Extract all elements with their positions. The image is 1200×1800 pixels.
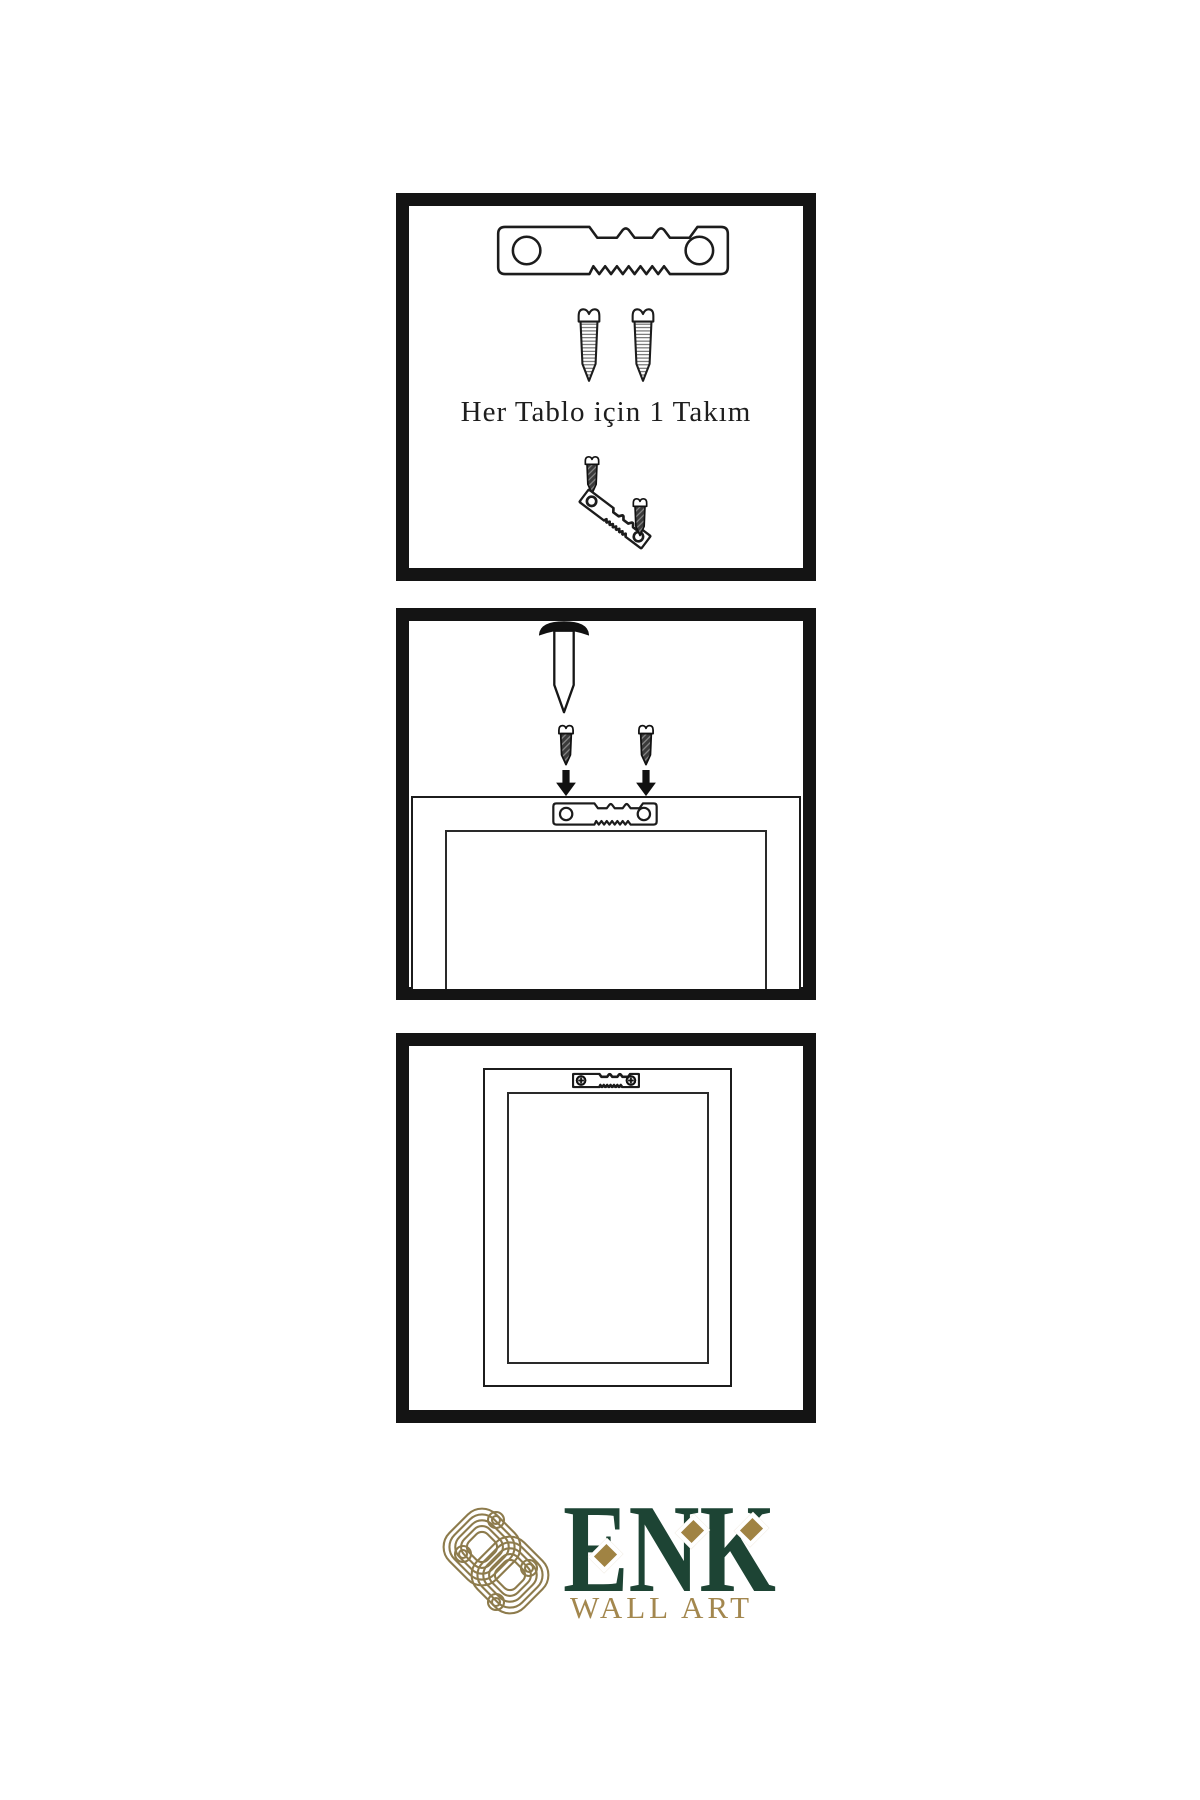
- down-arrow-icon: [556, 770, 576, 797]
- knot-logo-icon: [435, 1493, 557, 1629]
- dark-screw-icon: [630, 495, 650, 541]
- screw-icon: [573, 305, 605, 387]
- sawtooth-hanger-icon: [495, 224, 731, 277]
- down-arrow-icon: [636, 770, 656, 797]
- brand-logo: ENK WALL ART: [430, 1480, 830, 1670]
- sawtooth-hanger-icon: [552, 801, 658, 827]
- step-3-panel: [396, 1033, 816, 1423]
- step-2-panel: [396, 608, 816, 1000]
- screw-icon: [627, 305, 659, 387]
- kit-caption: Her Tablo için 1 Takım: [409, 396, 803, 429]
- dark-screw-icon: [635, 723, 657, 769]
- frame-back-inner-edge: [445, 830, 767, 989]
- hung-frame-inner-edge: [507, 1092, 709, 1364]
- mounted-sawtooth-hanger-icon: [572, 1072, 640, 1089]
- instruction-sheet: Her Tablo için 1 Takım: [0, 0, 1200, 1800]
- wall-nail-icon: [538, 621, 590, 718]
- dark-screw-icon: [555, 723, 577, 769]
- step-1-panel: Her Tablo için 1 Takım: [396, 193, 816, 581]
- brand-tagline: WALL ART: [570, 1590, 753, 1626]
